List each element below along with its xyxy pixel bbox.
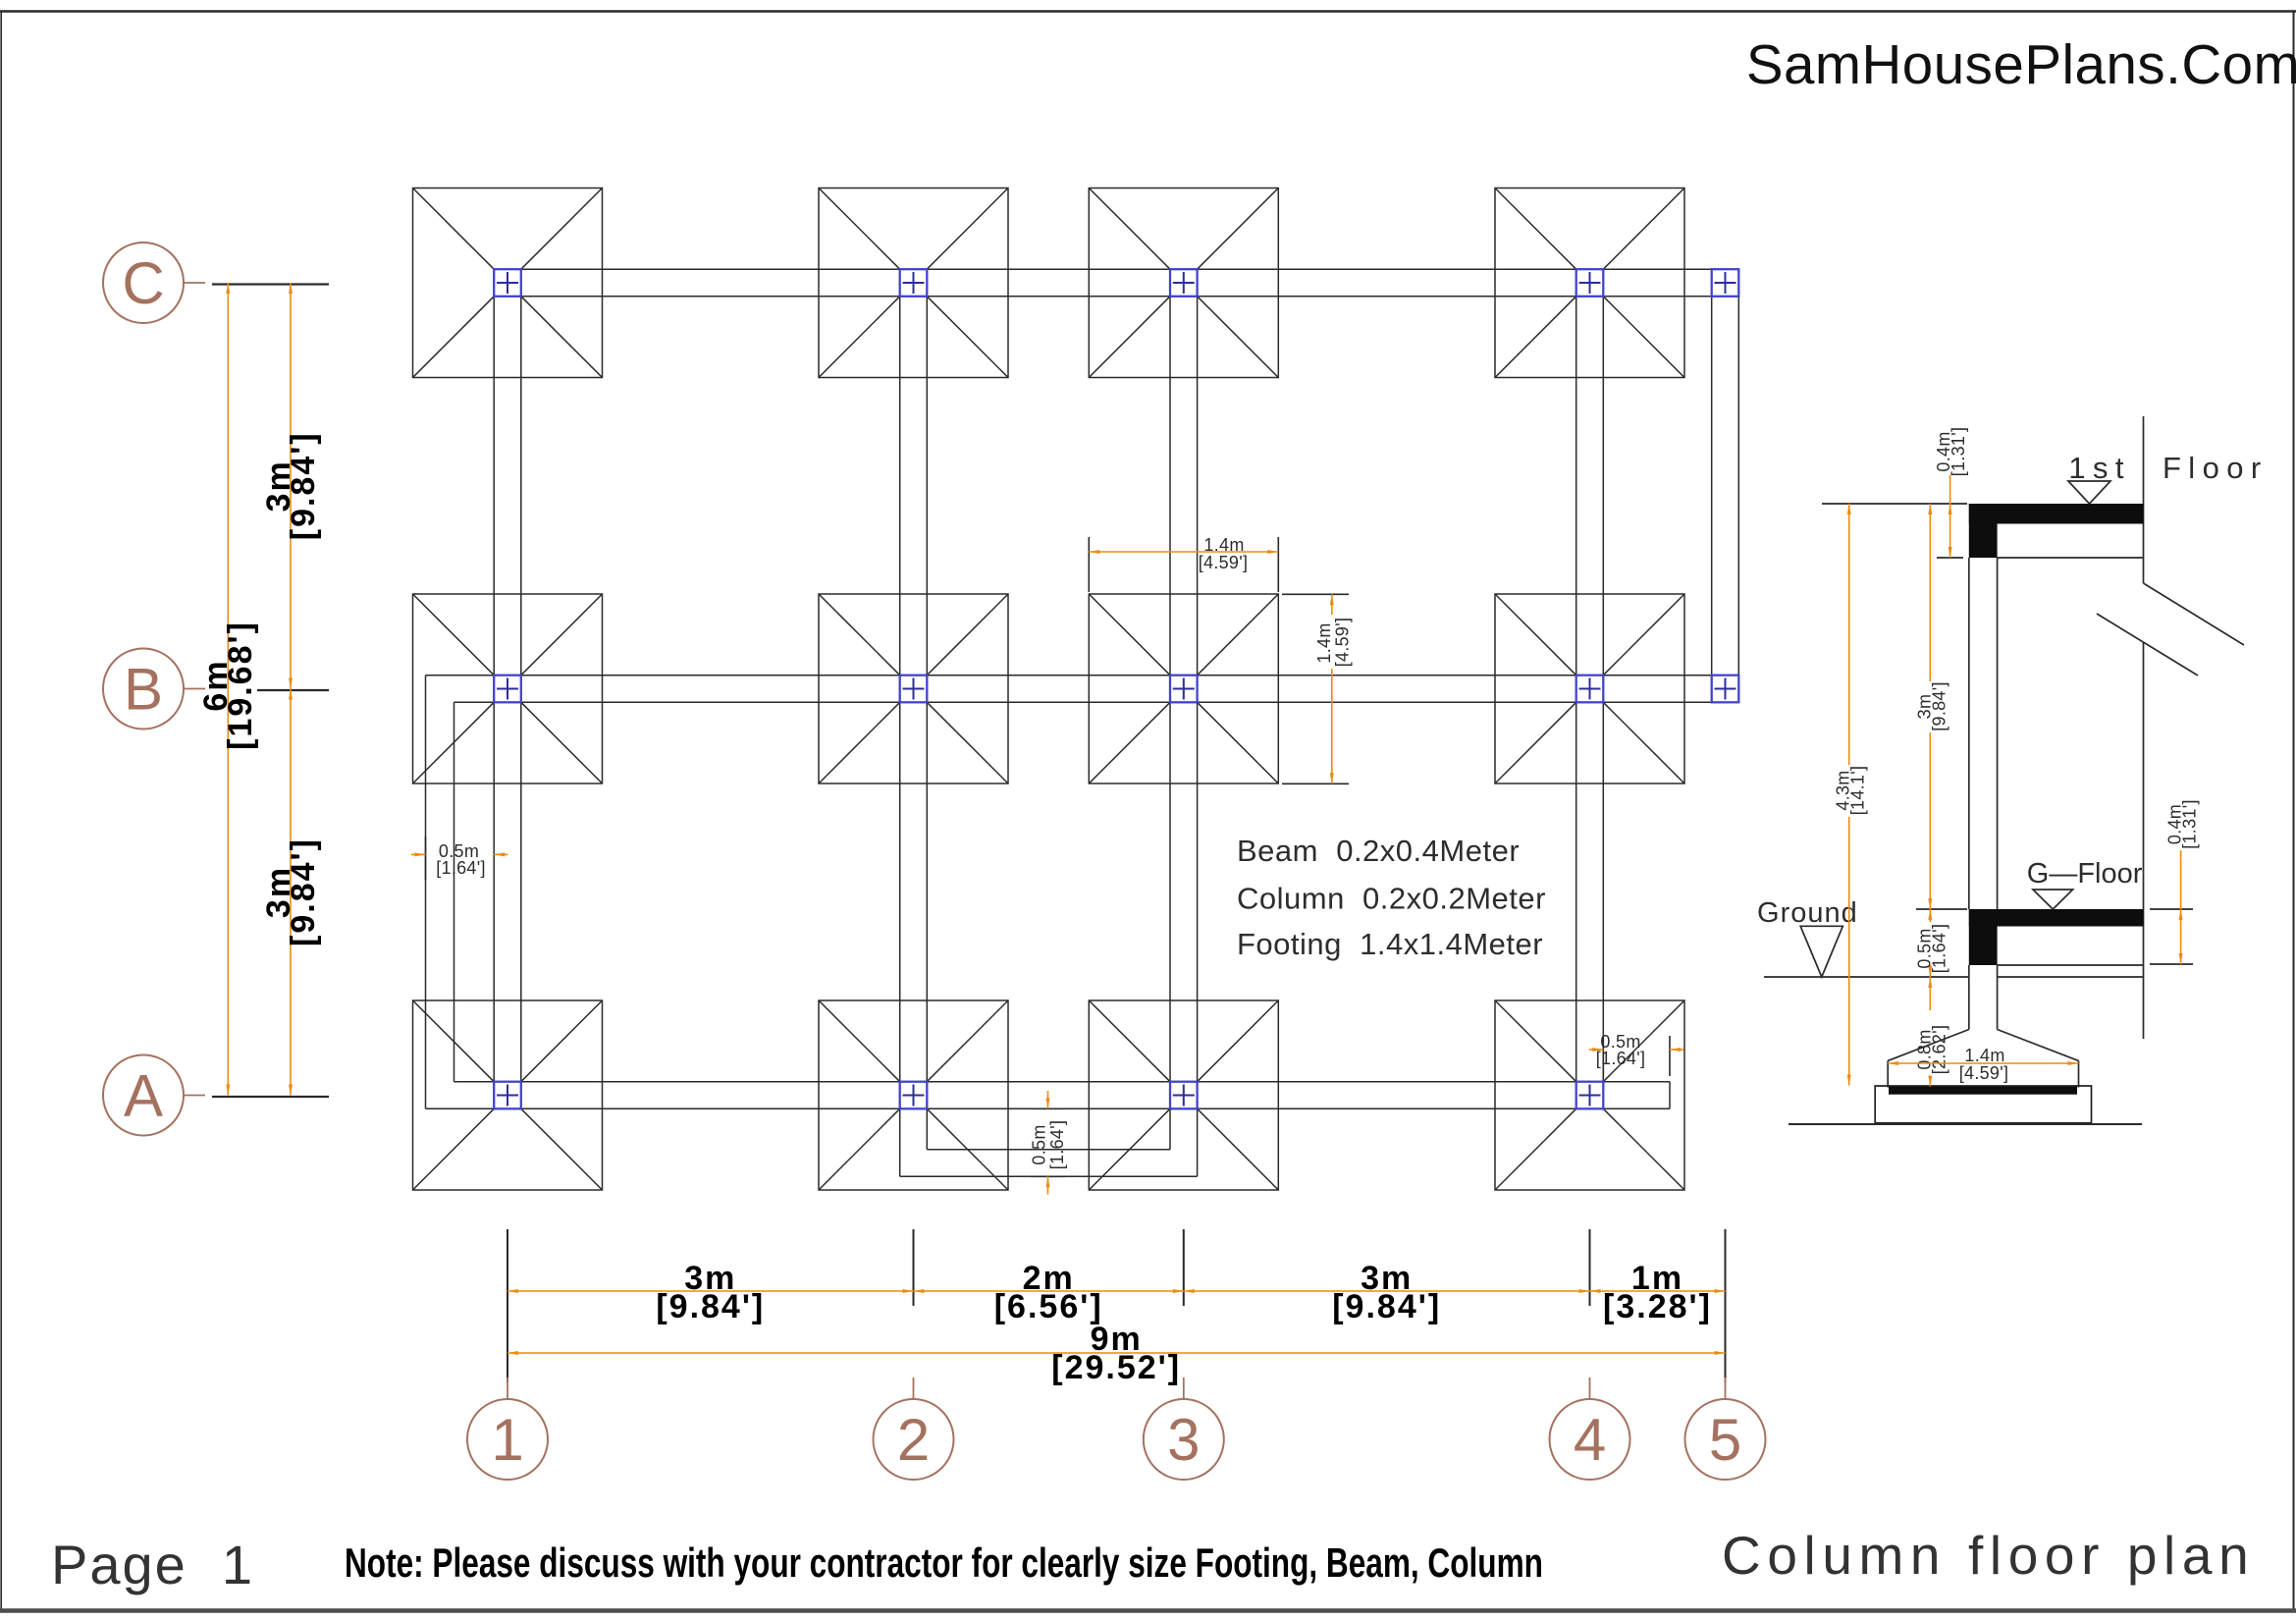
- svg-text:SamHousePlans.Com: SamHousePlans.Com: [1746, 33, 2296, 95]
- svg-text:[6.56']: [6.56']: [994, 1288, 1103, 1325]
- svg-text:1.4m: 1.4m: [1203, 535, 1244, 555]
- svg-text:2: 2: [897, 1407, 930, 1473]
- svg-text:Note: Please discuss with your: Note: Please discuss with your contracto…: [345, 1539, 1543, 1586]
- svg-text:[1.64']: [1.64']: [1596, 1049, 1646, 1068]
- svg-text:[4.59']: [4.59']: [1333, 618, 1353, 668]
- svg-text:Page 1: Page 1: [51, 1534, 254, 1595]
- svg-text:[2.62']: [2.62']: [1930, 1025, 1949, 1075]
- svg-text:[1.31']: [1.31']: [2180, 799, 2200, 849]
- svg-text:[9.84']: [9.84']: [1332, 1288, 1441, 1325]
- svg-text:[19.68']: [19.68']: [222, 621, 259, 750]
- svg-text:Ground: Ground: [1757, 897, 1858, 929]
- svg-text:A: A: [124, 1063, 163, 1129]
- svg-text:Footing 1.4x1.4Meter: Footing 1.4x1.4Meter: [1237, 927, 1543, 961]
- svg-text:1.4m: 1.4m: [1314, 622, 1334, 663]
- svg-text:C: C: [122, 250, 164, 316]
- svg-text:Column 0.2x0.2Meter: Column 0.2x0.2Meter: [1237, 882, 1546, 916]
- svg-text:[9.84']: [9.84']: [1930, 681, 1949, 731]
- svg-text:4: 4: [1574, 1407, 1606, 1473]
- svg-text:[4.59']: [4.59']: [1959, 1063, 2009, 1083]
- svg-text:[1.31']: [1.31']: [1949, 427, 1968, 477]
- svg-text:1st Floor: 1st Floor: [2068, 451, 2268, 485]
- svg-text:[3.28']: [3.28']: [1603, 1288, 1712, 1325]
- svg-text:5: 5: [1709, 1407, 1741, 1473]
- svg-text:[4.59']: [4.59']: [1199, 553, 1249, 572]
- svg-text:1: 1: [491, 1407, 523, 1473]
- svg-text:[9.84']: [9.84']: [285, 431, 322, 540]
- svg-text:[29.52']: [29.52']: [1051, 1349, 1181, 1386]
- svg-text:[14.1']: [14.1']: [1848, 766, 1868, 816]
- svg-text:G—Floor: G—Floor: [2027, 858, 2143, 890]
- svg-text:1.4m: 1.4m: [1964, 1046, 2004, 1065]
- svg-text:Column floor plan: Column floor plan: [1722, 1525, 2255, 1586]
- svg-text:[9.84']: [9.84']: [285, 837, 322, 946]
- svg-text:Beam 0.2x0.4Meter: Beam 0.2x0.4Meter: [1237, 834, 1520, 868]
- svg-text:[9.84']: [9.84']: [656, 1288, 765, 1325]
- svg-text:[1.64']: [1.64']: [1047, 1120, 1067, 1170]
- svg-text:0.5m: 0.5m: [1030, 1124, 1049, 1164]
- svg-text:3: 3: [1167, 1407, 1200, 1473]
- svg-text:[1.64']: [1.64']: [1930, 924, 1949, 974]
- svg-text:B: B: [124, 657, 163, 723]
- svg-text:[1.64']: [1.64']: [436, 858, 486, 878]
